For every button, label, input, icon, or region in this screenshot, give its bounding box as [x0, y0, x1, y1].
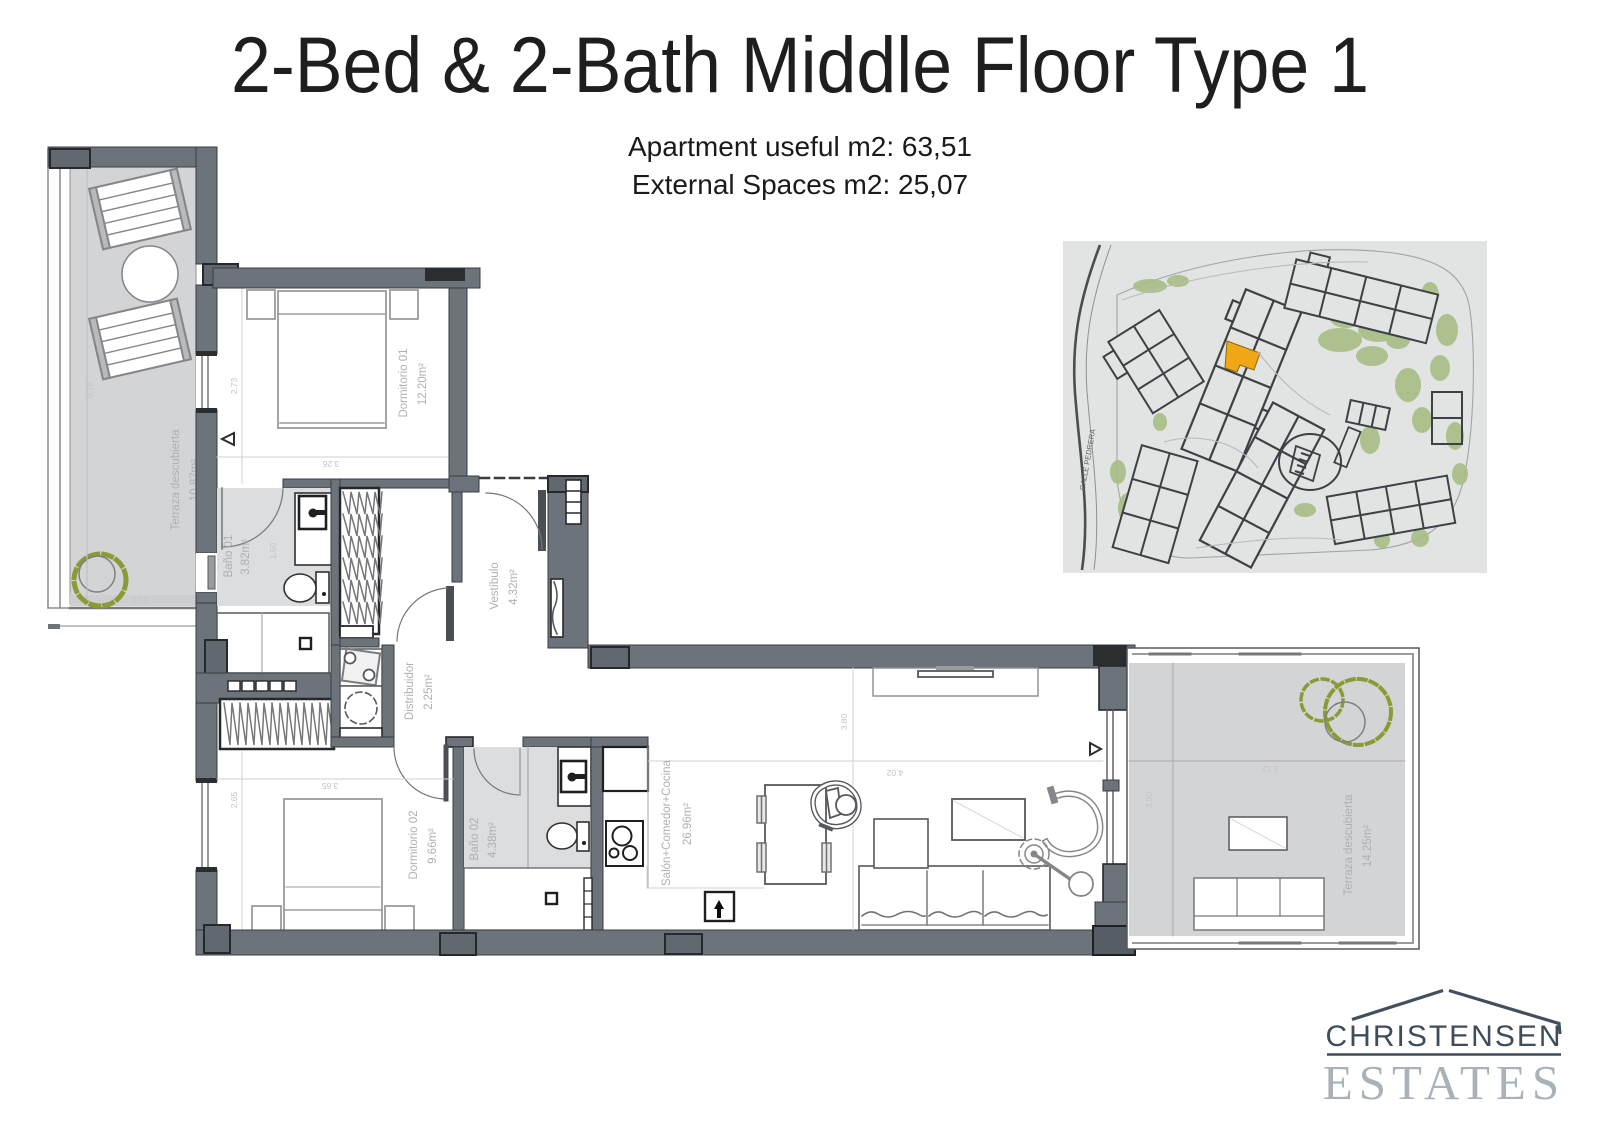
svg-text:9.18: 9.18 [85, 381, 95, 398]
svg-text:2.25m²: 2.25m² [423, 674, 435, 710]
svg-text:ESTATES: ESTATES [1323, 1055, 1565, 1110]
svg-text:3.26: 3.26 [322, 459, 339, 469]
svg-text:Salón+Comedor+Cocina: Salón+Comedor+Cocina [661, 759, 673, 886]
svg-text:Dormitorio 02: Dormitorio 02 [408, 810, 420, 879]
svg-text:1.15: 1.15 [132, 595, 149, 605]
svg-text:4.38m²: 4.38m² [487, 822, 499, 858]
svg-text:3.90: 3.90 [1144, 791, 1154, 808]
svg-text:Vestíbulo: Vestíbulo [489, 562, 501, 609]
svg-text:2.65: 2.65 [229, 791, 239, 808]
svg-text:9.66m²: 9.66m² [427, 828, 439, 864]
svg-text:CHRISTENSEN: CHRISTENSEN [1325, 1020, 1562, 1053]
svg-text:3.65: 3.65 [321, 781, 338, 791]
svg-text:4.32m²: 4.32m² [508, 569, 520, 605]
svg-text:Distribuidor: Distribuidor [404, 662, 416, 720]
svg-text:14.25m²: 14.25m² [1362, 825, 1374, 867]
svg-text:2.73: 2.73 [229, 377, 239, 394]
svg-text:26.96m²: 26.96m² [682, 803, 694, 845]
svg-text:3.82m²: 3.82m² [240, 539, 252, 575]
svg-text:3.80: 3.80 [839, 713, 849, 730]
svg-text:Dormitorio 01: Dormitorio 01 [398, 348, 410, 417]
svg-text:1.50: 1.50 [268, 542, 278, 559]
svg-text:12.20m²: 12.20m² [417, 363, 429, 405]
svg-text:5.12: 5.12 [1261, 764, 1278, 774]
svg-text:2-Bed & 2-Bath Middle Floor Ty: 2-Bed & 2-Bath Middle Floor Type 1 [231, 20, 1369, 109]
svg-text:Baño 01: Baño 01 [223, 535, 235, 578]
svg-text:Terraza descubierta: Terraza descubierta [1343, 794, 1355, 896]
svg-text:External Spaces m2: 25,07: External Spaces m2: 25,07 [632, 169, 968, 200]
svg-text:Apartment useful m2: 63,51: Apartment useful m2: 63,51 [628, 131, 972, 162]
svg-text:4.02: 4.02 [886, 768, 903, 778]
svg-text:Baño 02: Baño 02 [469, 818, 481, 861]
svg-text:Terraza descubierta: Terraza descubierta [170, 429, 182, 531]
